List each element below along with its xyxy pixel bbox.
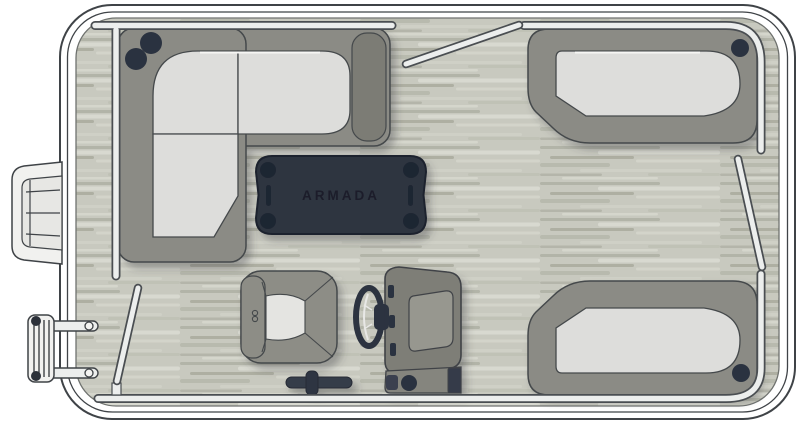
table-cup-holder-icon (403, 213, 419, 229)
ladder-pin-icon (31, 316, 41, 326)
table-cup-holder-icon (403, 162, 419, 178)
starboard-stern-lounge (528, 281, 757, 395)
brand-label: ARMADA (302, 188, 380, 203)
lounge-cushion (556, 308, 740, 373)
corner-cushion (153, 51, 238, 134)
console-panel (409, 291, 453, 351)
cup-holder-icon (140, 32, 162, 54)
table-cup-holder-icon (260, 162, 276, 178)
center-table: ARMADA (256, 156, 426, 234)
cup-holder-icon (401, 375, 417, 391)
lounge-cushion (556, 51, 740, 116)
switch-icon (390, 343, 396, 356)
ladder-pin-icon (31, 371, 41, 381)
switch-icon (389, 315, 395, 328)
table-cup-holder-icon (260, 213, 276, 229)
helm-console (385, 267, 461, 393)
cup-holder-icon (125, 48, 147, 70)
floorplan-canvas: ARMADA (0, 0, 800, 424)
cup-holder-icon (731, 39, 749, 57)
top-cushion (238, 51, 350, 134)
switch-icon (388, 285, 394, 298)
chair-seat (266, 294, 305, 340)
pontoon-floorplan: ARMADA (0, 0, 800, 424)
cup-holder-icon (732, 364, 750, 382)
bow-boarding-step (12, 162, 62, 264)
starboard-bow-lounge (528, 29, 757, 143)
captain-chair (241, 271, 337, 363)
